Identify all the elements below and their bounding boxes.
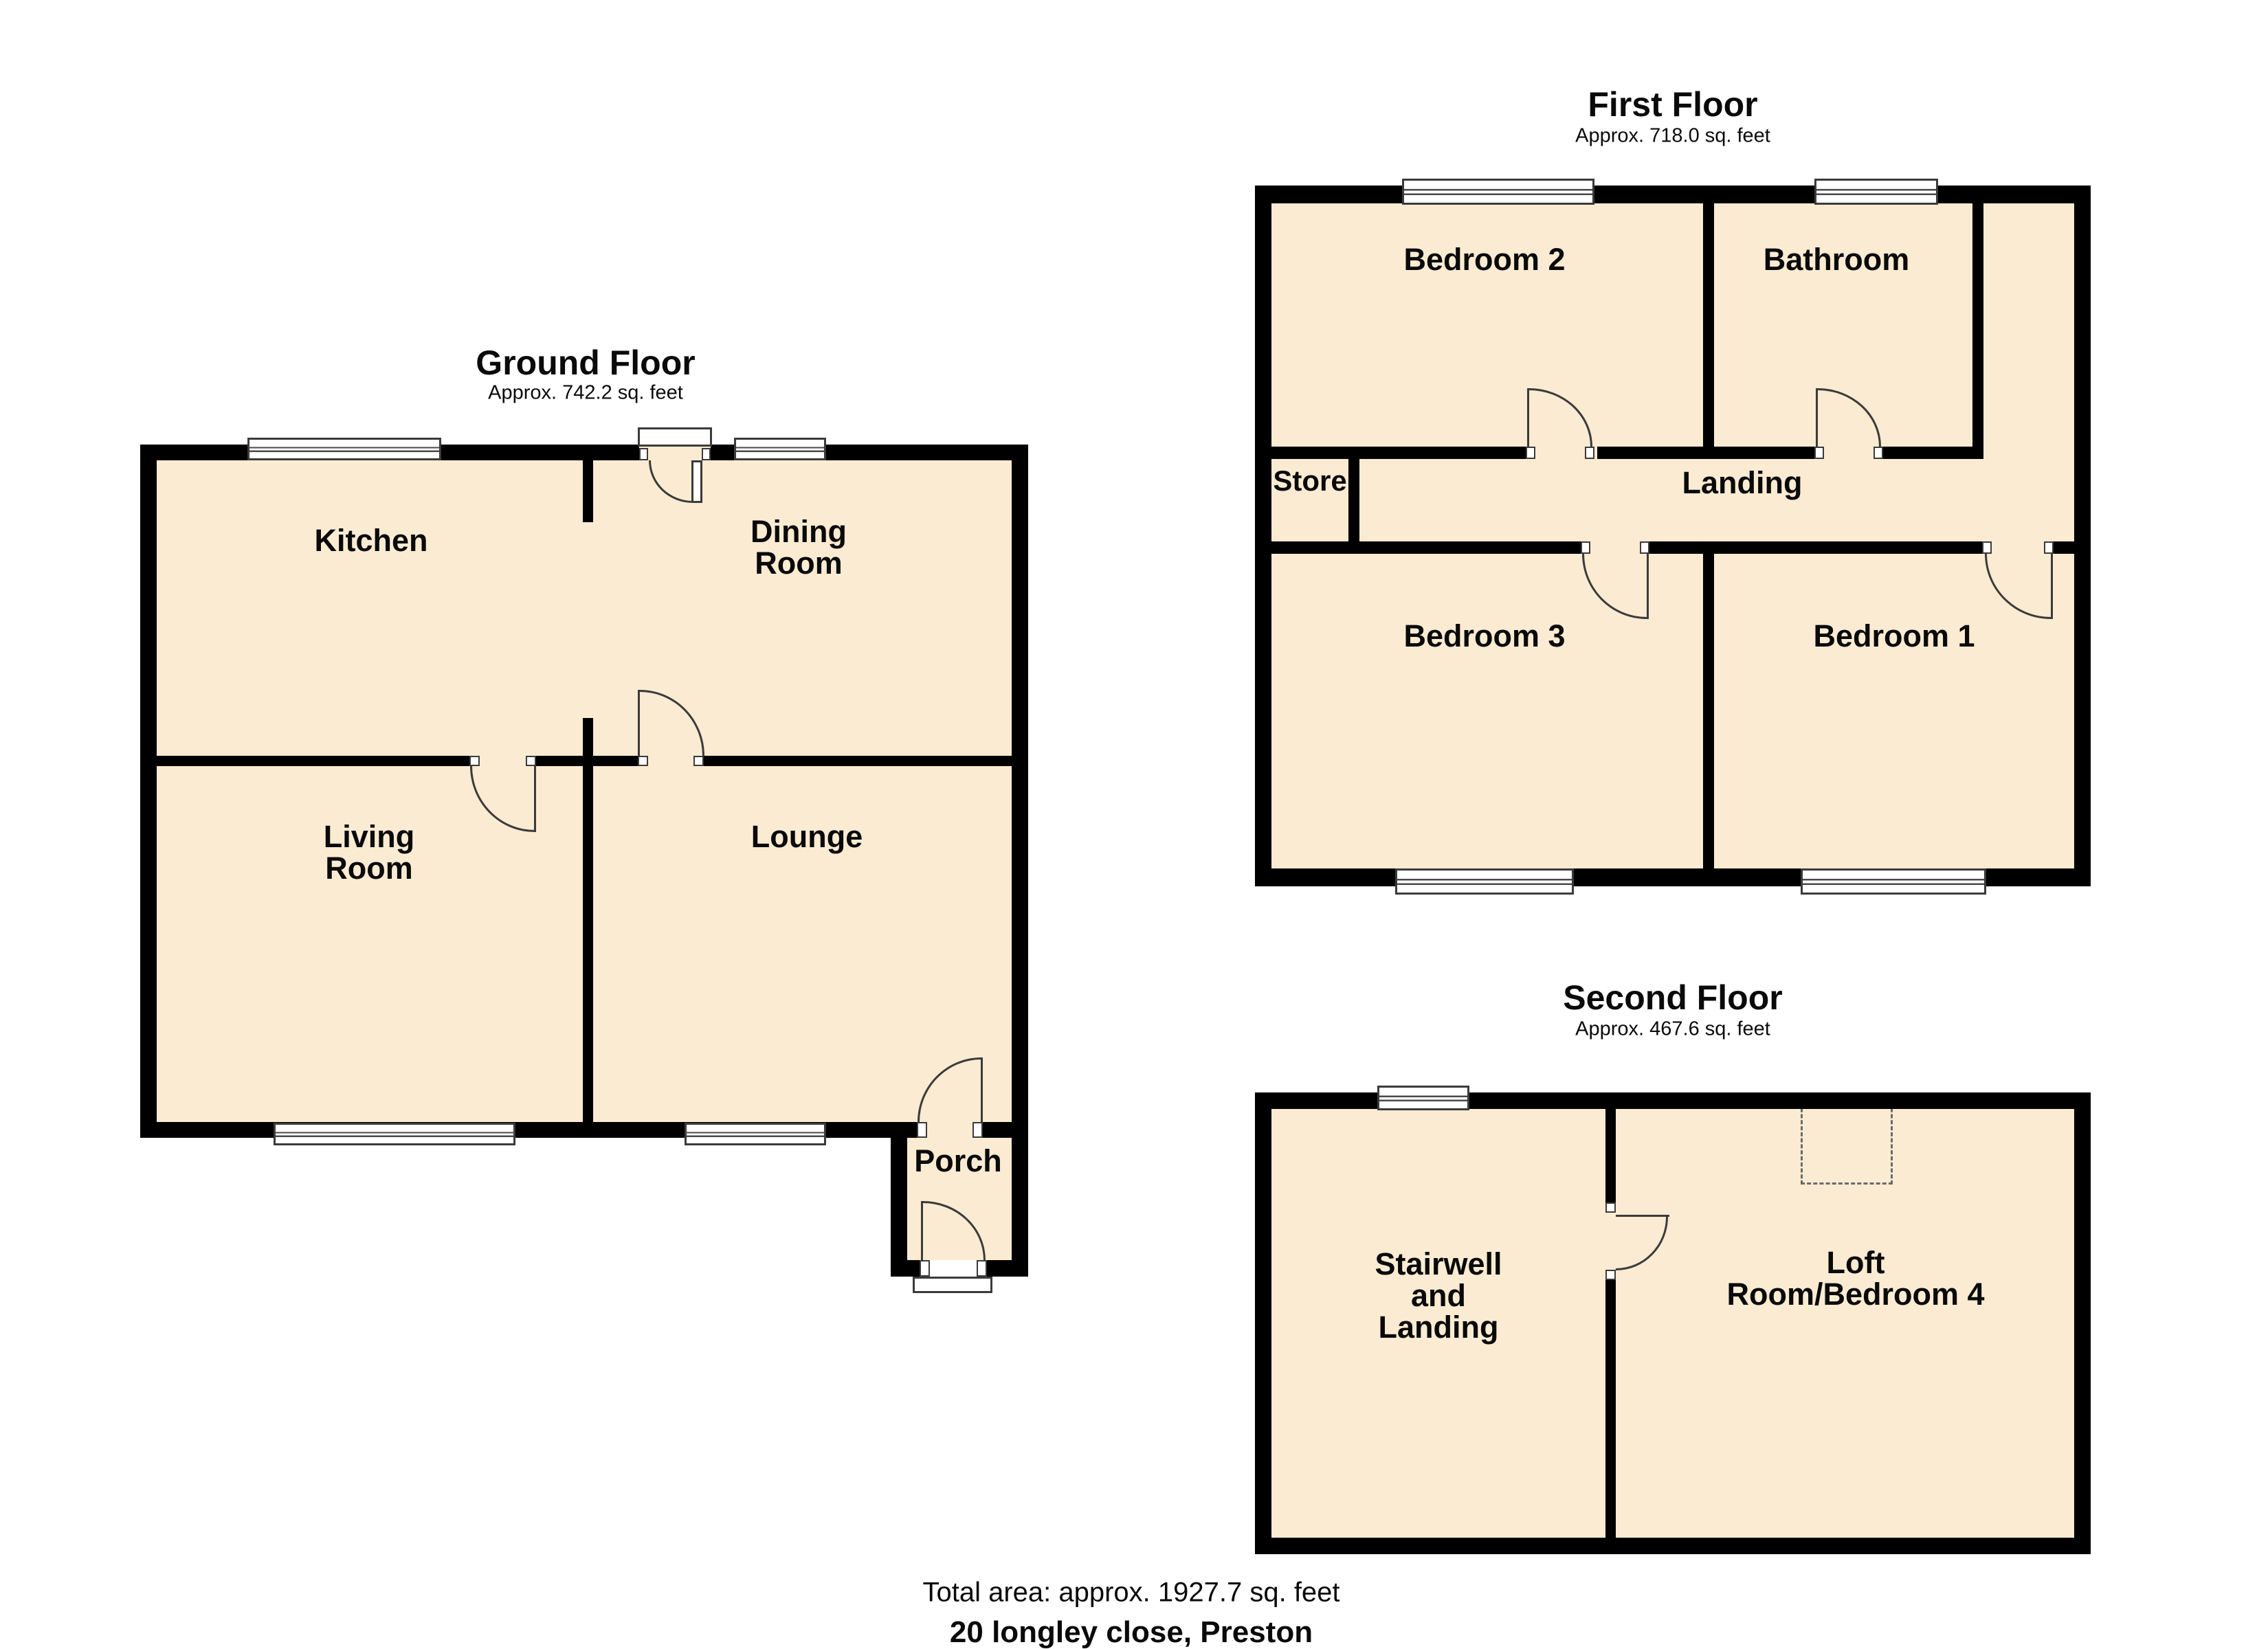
store-right-wall bbox=[1348, 459, 1359, 541]
ground-floor-title: Ground Floor bbox=[476, 343, 695, 383]
landing-label: Landing bbox=[1682, 467, 1803, 499]
loft-door-jamb-top bbox=[1605, 1202, 1616, 1213]
bedroom1-label: Bedroom 1 bbox=[1813, 620, 1975, 652]
bedroom1-door-leaf bbox=[2051, 554, 2053, 619]
second-floor-area: Approx. 467.6 sq. feet bbox=[1575, 1018, 1770, 1041]
porch-inner-door-jamb-left bbox=[917, 1122, 927, 1138]
entrance-door-panel bbox=[638, 427, 712, 447]
bedroom2-window bbox=[1402, 179, 1594, 205]
porch-external-door-jamb-right bbox=[977, 1260, 987, 1277]
entrance-door-jamb-left bbox=[639, 448, 648, 460]
ground-center-stub-wall bbox=[583, 718, 593, 756]
loft-door-jamb-bottom bbox=[1605, 1270, 1616, 1280]
bedroom3-door-jamb-left bbox=[1581, 541, 1590, 554]
dining-room-label: Dining Room bbox=[751, 516, 847, 579]
porch-external-door-jamb-left bbox=[920, 1260, 930, 1277]
bedroom2-door-jamb-left bbox=[1526, 447, 1535, 459]
stairwell-loft-divider-lower bbox=[1605, 1280, 1616, 1538]
floorplan-page: Ground Floor Approx. 742.2 sq. feet bbox=[0, 0, 2268, 1649]
bedroom3-window bbox=[1395, 868, 1574, 895]
ground-mid-wall-segment-3 bbox=[704, 756, 1012, 766]
bedroom1-door-jamb-left bbox=[1982, 541, 1992, 554]
landing-top-wall-segment-2 bbox=[1597, 447, 1814, 459]
dining-door-jamb-left bbox=[638, 756, 648, 766]
living-room-label: Living Room bbox=[324, 821, 415, 884]
kitchen-window bbox=[247, 438, 441, 460]
porch-inner-door-jamb-right bbox=[972, 1122, 983, 1138]
bedroom1-door-jamb-right bbox=[2044, 541, 2054, 554]
first-right-wall bbox=[2074, 186, 2091, 886]
first-floor-interior bbox=[1271, 203, 2074, 870]
lounge-label: Lounge bbox=[751, 821, 863, 853]
loft-room-label: Loft Room/Bedroom 4 bbox=[1726, 1247, 1984, 1310]
entrance-door-leaf bbox=[691, 460, 702, 503]
dining-door-jamb-right bbox=[693, 756, 704, 766]
loft-hatch-dashed-outline bbox=[1801, 1102, 1893, 1185]
ground-floor-area: Approx. 742.2 sq. feet bbox=[488, 382, 683, 405]
entrance-door-jamb-right bbox=[702, 448, 711, 460]
dining-window bbox=[734, 438, 826, 460]
bedroom3-bedroom1-divider-wall bbox=[1703, 554, 1714, 870]
first-floor-area: Approx. 718.0 sq. feet bbox=[1575, 125, 1770, 148]
second-left-wall bbox=[1255, 1092, 1271, 1554]
living-room-window bbox=[274, 1123, 515, 1145]
bathroom-label: Bathroom bbox=[1764, 244, 1910, 276]
landing-bottom-wall-segment-3 bbox=[2054, 541, 2074, 554]
first-left-wall bbox=[1255, 186, 1271, 886]
bathroom-door-jamb-right bbox=[1874, 447, 1883, 459]
living-lounge-divider-wall bbox=[583, 756, 593, 1123]
bedroom2-door-jamb-right bbox=[1585, 447, 1594, 459]
second-floor-title: Second Floor bbox=[1563, 978, 1782, 1018]
ground-mid-wall-segment-1 bbox=[157, 756, 469, 766]
ground-bottom-wall-right-segment bbox=[983, 1122, 1028, 1138]
bathroom-window bbox=[1814, 179, 1938, 205]
stairwell-window bbox=[1377, 1086, 1469, 1110]
living-door-jamb-right bbox=[526, 756, 536, 766]
bedroom3-label: Bedroom 3 bbox=[1403, 620, 1565, 652]
stairwell-loft-divider-upper bbox=[1605, 1109, 1616, 1202]
bedroom2-label: Bedroom 2 bbox=[1403, 244, 1565, 276]
porch-label: Porch bbox=[914, 1145, 1002, 1177]
landing-top-wall-segment-1 bbox=[1271, 447, 1526, 459]
bedroom1-window bbox=[1801, 868, 1986, 895]
second-bottom-wall bbox=[1255, 1538, 2091, 1554]
porch-bottom-wall-left-segment bbox=[891, 1260, 920, 1277]
landing-bottom-wall-segment-1 bbox=[1271, 541, 1581, 554]
lounge-window bbox=[685, 1123, 826, 1145]
porch-bottom-wall-right-segment bbox=[987, 1260, 1028, 1277]
porch-door-step bbox=[913, 1277, 992, 1293]
living-door-jamb-left bbox=[469, 756, 480, 766]
first-floor-title: First Floor bbox=[1588, 85, 1757, 124]
total-area-text: Total area: approx. 1927.7 sq. feet bbox=[922, 1578, 1339, 1608]
bathroom-door-jamb-left bbox=[1814, 447, 1824, 459]
bedroom3-door-leaf bbox=[1647, 554, 1649, 619]
second-right-wall bbox=[2074, 1092, 2091, 1554]
ground-left-wall bbox=[140, 445, 157, 1138]
ground-right-wall bbox=[1012, 445, 1028, 1277]
bedroom2-bathroom-divider-wall bbox=[1703, 203, 1714, 447]
landing-bottom-wall-segment-2 bbox=[1649, 541, 1982, 554]
store-label: Store bbox=[1273, 465, 1346, 497]
address-text: 20 longley close, Preston bbox=[950, 1615, 1313, 1649]
first-top-wall bbox=[1255, 186, 2091, 203]
bedroom3-door-jamb-right bbox=[1640, 541, 1649, 554]
landing-top-wall-segment-3 bbox=[1883, 447, 1972, 459]
bathroom-right-wall bbox=[1972, 203, 1983, 459]
kitchen-label: Kitchen bbox=[314, 525, 427, 557]
kitchen-dining-stub-wall bbox=[583, 460, 593, 522]
entrance-door-opening bbox=[639, 445, 711, 460]
porch-left-wall bbox=[891, 1138, 907, 1277]
stairwell-landing-label: Stairwell and Landing bbox=[1375, 1248, 1502, 1343]
